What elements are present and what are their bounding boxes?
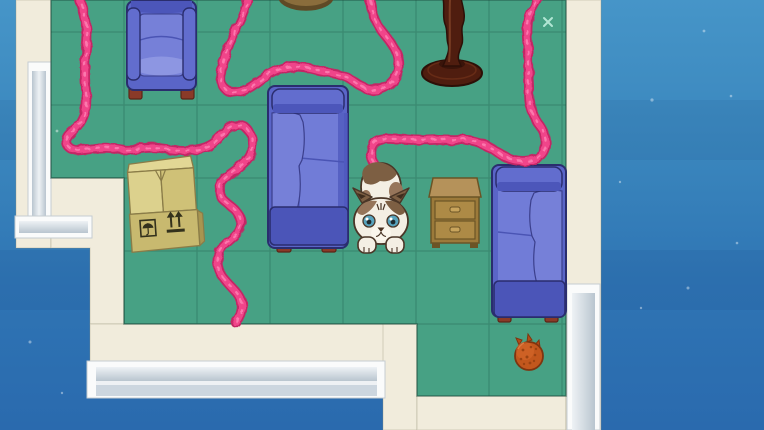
cardboard-box[interactable] — [126, 155, 205, 252]
wall-bottom — [90, 324, 417, 363]
sparkle-dot-icon — [650, 98, 653, 101]
wall-bottom-right — [417, 396, 566, 430]
sparkle-dot-icon — [640, 307, 642, 309]
bottom-window — [87, 361, 385, 398]
sparkle-dot-icon — [703, 30, 706, 33]
corner-window — [15, 216, 92, 238]
room-scene — [0, 0, 764, 430]
wall-notch — [51, 178, 124, 324]
game-viewport — [0, 0, 764, 430]
cat-paw — [386, 237, 404, 253]
sparkle-dot-icon — [736, 242, 739, 245]
armchair[interactable] — [127, 1, 196, 99]
sparkle-dot-icon — [730, 95, 733, 98]
drawer-handle — [450, 227, 460, 232]
wall-bottom-pier — [383, 324, 417, 430]
cat-paw — [358, 237, 376, 253]
right-window — [567, 284, 600, 430]
sparkle-dot-icon — [29, 341, 32, 344]
drawer-handle — [450, 207, 460, 212]
right-couch[interactable] — [492, 165, 566, 322]
floor-dot-sparkle-icon — [56, 130, 59, 133]
nightstand[interactable] — [429, 178, 481, 248]
left-window — [28, 62, 51, 222]
sparkle-dot-icon — [61, 392, 63, 394]
sparkle-dot-icon — [619, 181, 621, 183]
sparkle-dot-icon — [687, 287, 690, 290]
center-couch[interactable] — [268, 86, 348, 252]
